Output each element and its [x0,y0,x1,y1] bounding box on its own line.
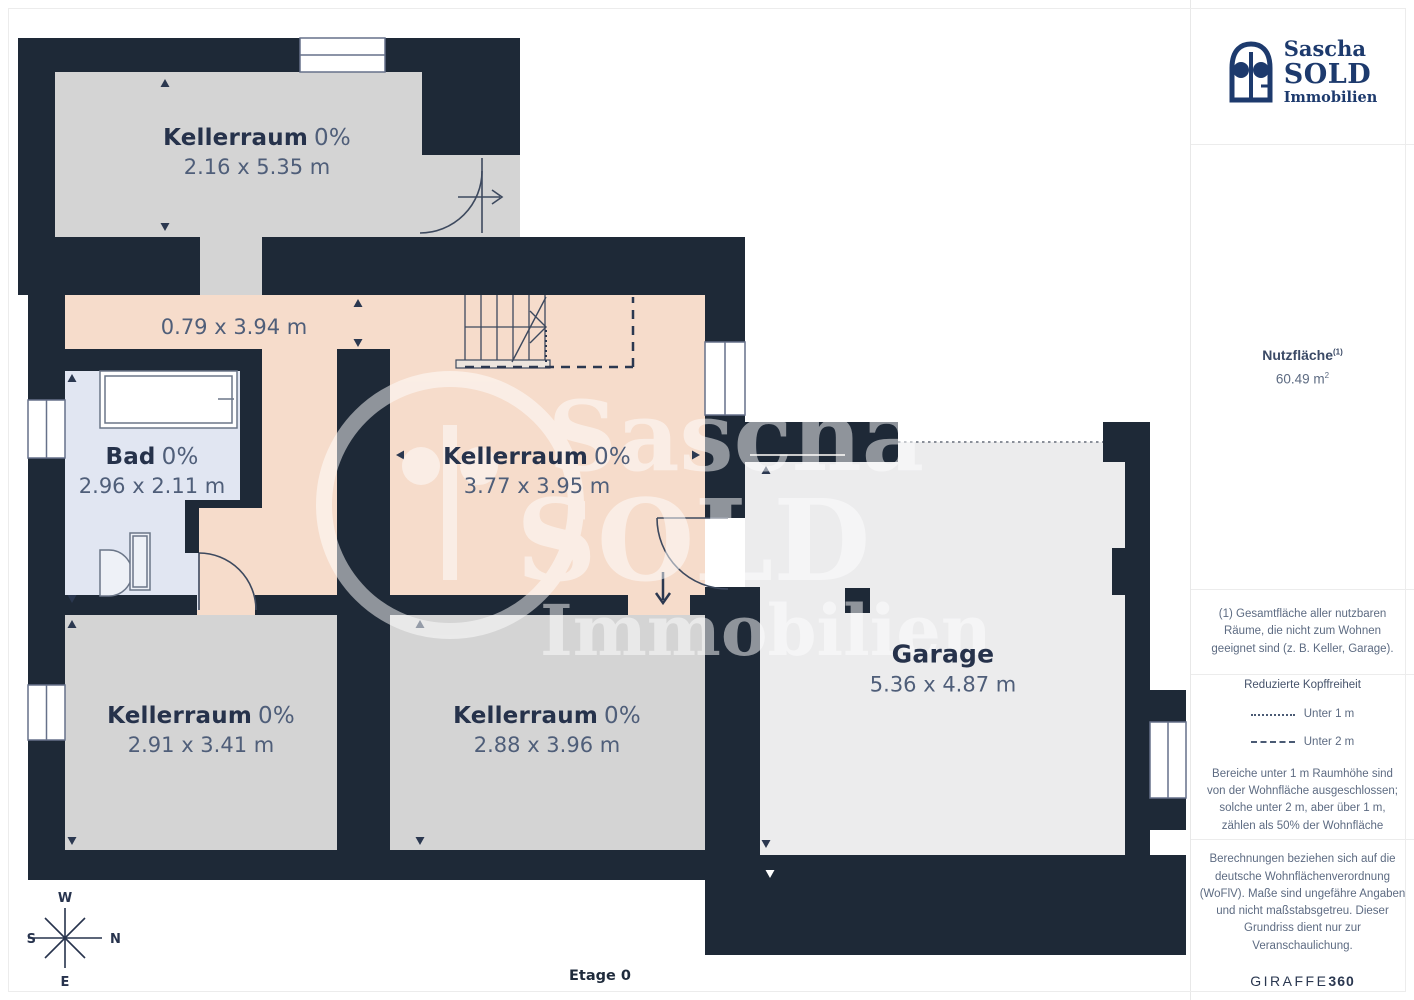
dotted-line-sample [1251,714,1295,716]
giraffe360-logo: GIRAFFE360 [1250,973,1355,989]
label-flur: 0.79 x 3.94 m [161,315,307,339]
brand-logo-text: Sascha SOLD Immobilien [1284,38,1378,106]
label-bad: Bad0% 2.96 x 2.11 m [79,444,225,498]
vestibule [422,155,520,237]
disclaimer-panel: Berechnungen beziehen sich auf die deuts… [1191,840,1414,1000]
label-kellerraum-top: Kellerraum0% 2.16 x 5.35 m [163,125,351,179]
area-stats-panel: Nutzfläche(1) 60.49 m2 [1191,145,1414,590]
compass-rose [28,908,102,968]
corridor-patch [199,508,262,610]
legend-item-under-1m: Unter 1 m [1251,706,1355,723]
brand-name-line3: Immobilien [1284,91,1378,106]
area-value: 60.49 m2 [1276,371,1329,387]
footnote-panel: (1) Gesamtfläche aller nutzbaren Räume, … [1191,590,1414,675]
area-label: Nutzfläche(1) [1262,347,1343,363]
bathtub [100,371,237,428]
room-connector [200,237,262,297]
brand-name-line1: Sascha [1284,38,1378,59]
brand-logo-panel: Sascha SOLD Immobilien [1191,0,1414,145]
label-kellerraum-unten: Kellerraum0% 2.88 x 3.96 m [453,703,641,757]
footnote-text: (1) Gesamtfläche aller nutzbaren Räume, … [1211,606,1393,658]
label-garage: Garage 5.36 x 4.87 m [870,640,1016,697]
floorplan-page: { "palette": { "wall": "#1e2937", "room_… [0,0,1414,1000]
info-sidebar: Sascha SOLD Immobilien Nutzfläche(1) 60.… [1190,0,1414,1000]
brand-name-line2: SOLD [1284,61,1378,88]
window [28,685,65,740]
label-kellerraum-links: Kellerraum0% 2.91 x 3.41 m [107,703,295,757]
compass-north: N [110,932,121,947]
label-kellerraum-mitte: Kellerraum0% 3.77 x 3.95 m [443,444,631,498]
disclaimer-text: Berechnungen beziehen sich auf die deuts… [1200,851,1406,955]
legend-title: Reduzierte Kopffreiheit [1244,679,1361,691]
legend-note: Bereiche unter 1 m Raumhöhe sind von der… [1207,766,1398,835]
dashed-line-sample [1251,741,1295,743]
compass-east: E [61,975,70,990]
compass-west: W [58,891,72,906]
window [28,400,65,458]
window [1150,722,1186,798]
headroom-legend-panel: Reduzierte Kopffreiheit Unter 1 m Unter … [1191,675,1414,840]
sink [130,533,150,590]
compass-south: S [27,932,36,947]
compass-labels: W E S N [27,891,121,990]
brand-logo-icon [1228,41,1274,103]
legend-item-under-2m: Unter 2 m [1251,734,1355,751]
window [300,38,385,72]
floor-label: Etage 0 [569,968,631,984]
